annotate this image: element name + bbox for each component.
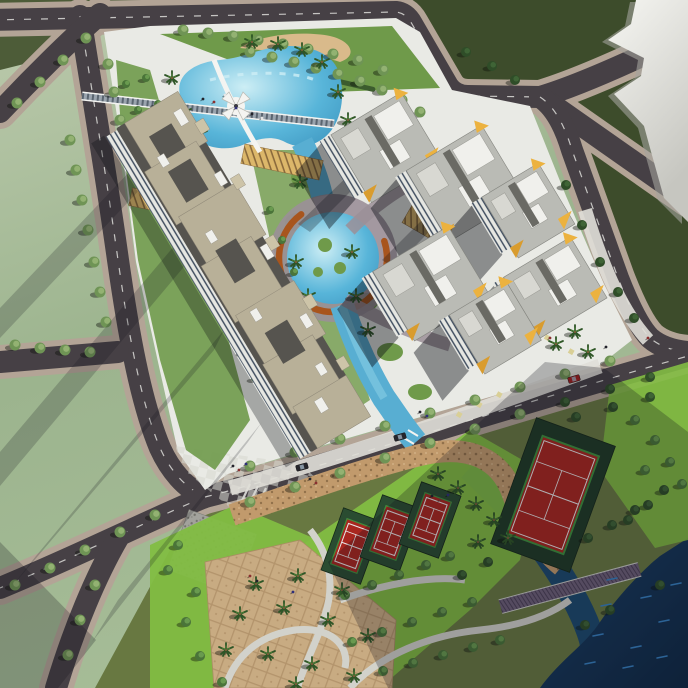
aerial-rendering-canvas — [0, 0, 688, 688]
lagoon-island — [313, 267, 323, 277]
garden-patch — [408, 384, 432, 400]
lagoon-island — [334, 262, 346, 274]
site-plan-rendering — [0, 0, 688, 688]
lagoon-island — [318, 238, 332, 252]
